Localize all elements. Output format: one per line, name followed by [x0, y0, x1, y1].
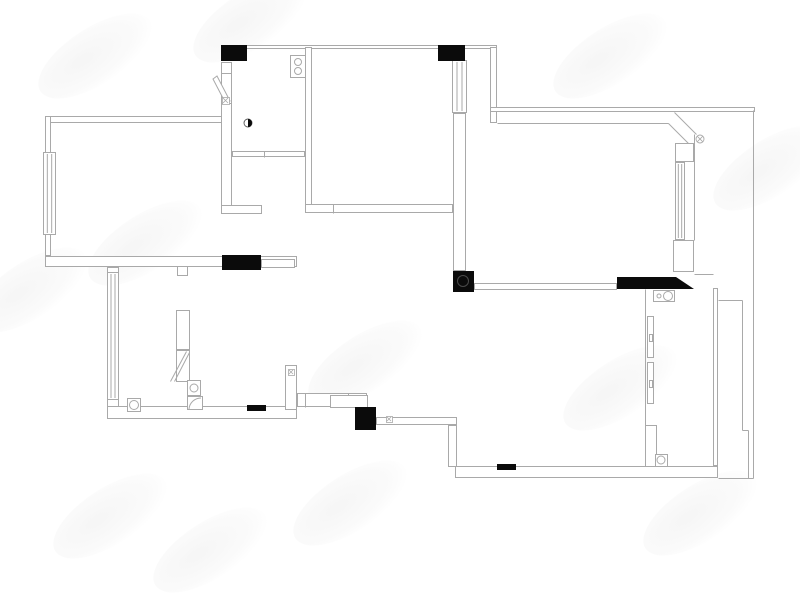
bedroom-left-wall — [454, 114, 466, 271]
column — [453, 271, 474, 292]
window — [676, 163, 685, 240]
balcony-lintel — [617, 277, 694, 289]
kitchen-bottom-wall — [233, 152, 305, 157]
chamfer-inner — [669, 124, 691, 146]
outer-top-wall — [491, 108, 755, 112]
wall-notch — [178, 267, 188, 276]
balcony-right-wall — [714, 289, 718, 466]
living-bottom-wall — [306, 205, 453, 213]
kitchen-left-wall — [222, 104, 232, 210]
window — [108, 273, 119, 400]
floor-plan-canvas — [0, 0, 800, 567]
window — [44, 153, 56, 235]
left-room-top-wall — [46, 117, 222, 123]
column — [221, 45, 247, 61]
floor-plan-stage — [0, 0, 800, 567]
column — [222, 255, 261, 270]
threshold — [497, 464, 516, 470]
bath-bottom-stub-left — [222, 206, 262, 214]
kitchen-right-wall — [306, 48, 312, 205]
bedroom-corner-block — [676, 144, 694, 162]
step-wall — [331, 396, 368, 408]
window-sill-block — [674, 241, 694, 272]
toilet-tank — [188, 381, 201, 396]
window — [453, 61, 467, 113]
door-lintel — [262, 260, 295, 268]
column — [438, 45, 465, 61]
panel-handle — [650, 335, 653, 342]
panel-handle — [650, 381, 653, 388]
entry-door-jamb — [222, 63, 232, 74]
bedroom-bottom-wall — [475, 284, 617, 290]
cabinet — [177, 311, 190, 350]
balcony-left-corner — [646, 426, 657, 470]
hall-wall-vert — [449, 426, 457, 467]
chamfer-outer — [675, 113, 697, 135]
bottom-outer-wall — [456, 467, 718, 478]
column — [355, 407, 376, 430]
threshold — [247, 405, 266, 411]
